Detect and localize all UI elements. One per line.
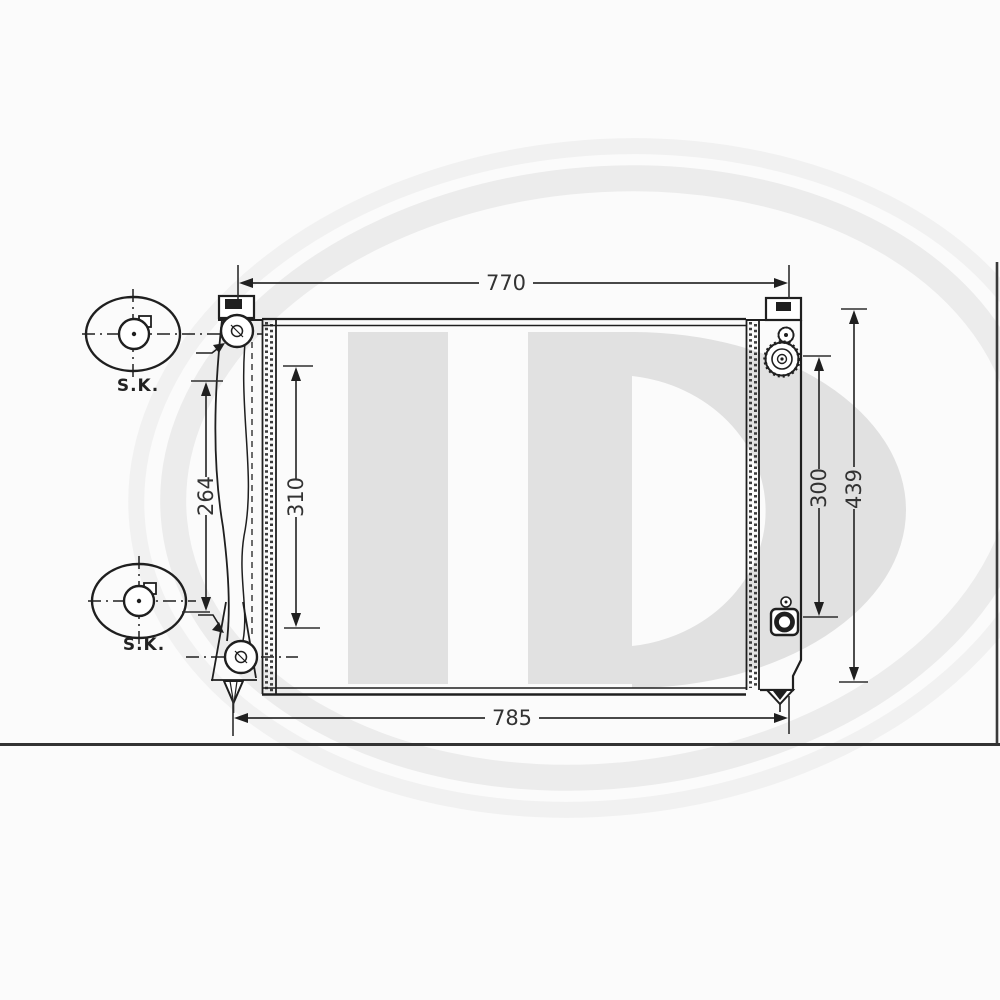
arrow-right-icon <box>774 278 788 288</box>
screw-center <box>784 333 788 337</box>
sk-label-bottom: S.K. <box>123 635 165 655</box>
dim-label-439: 439 <box>842 469 866 509</box>
arrow-down-icon <box>291 613 301 627</box>
dim-label-770: 770 <box>486 271 526 295</box>
sk-label-top: S.K. <box>117 376 159 396</box>
screenshot-canvas: S.K. S.K. <box>0 0 1000 1000</box>
arrow-up-icon <box>814 357 824 371</box>
dim-label-264: 264 <box>194 476 218 516</box>
dim-label-300: 300 <box>807 468 831 508</box>
radiator-diagram: S.K. S.K. <box>0 0 1000 1000</box>
sk-detail-center-dot <box>137 599 141 603</box>
filler-cap-dot <box>780 357 783 360</box>
drain-screw-center <box>785 601 788 604</box>
watermark-letter-d-stem <box>528 332 632 684</box>
bracket-slot <box>225 299 242 309</box>
tank-rib-curve <box>241 324 248 650</box>
arrow-right-icon <box>774 713 788 723</box>
watermark-letter-h-bar <box>348 332 448 684</box>
dim-label-310: 310 <box>284 477 308 517</box>
sk-detail-center-dot <box>132 332 136 336</box>
arrow-up-icon <box>849 310 859 324</box>
dim-left-core: 310 <box>283 366 320 628</box>
arrow-up-icon <box>291 367 301 381</box>
dim-right-overall: 439 <box>839 309 868 682</box>
dim-label-785: 785 <box>492 706 532 730</box>
drain-plug-ring <box>777 614 793 630</box>
arrow-down-icon <box>849 667 859 681</box>
bracket-slot <box>776 302 791 311</box>
